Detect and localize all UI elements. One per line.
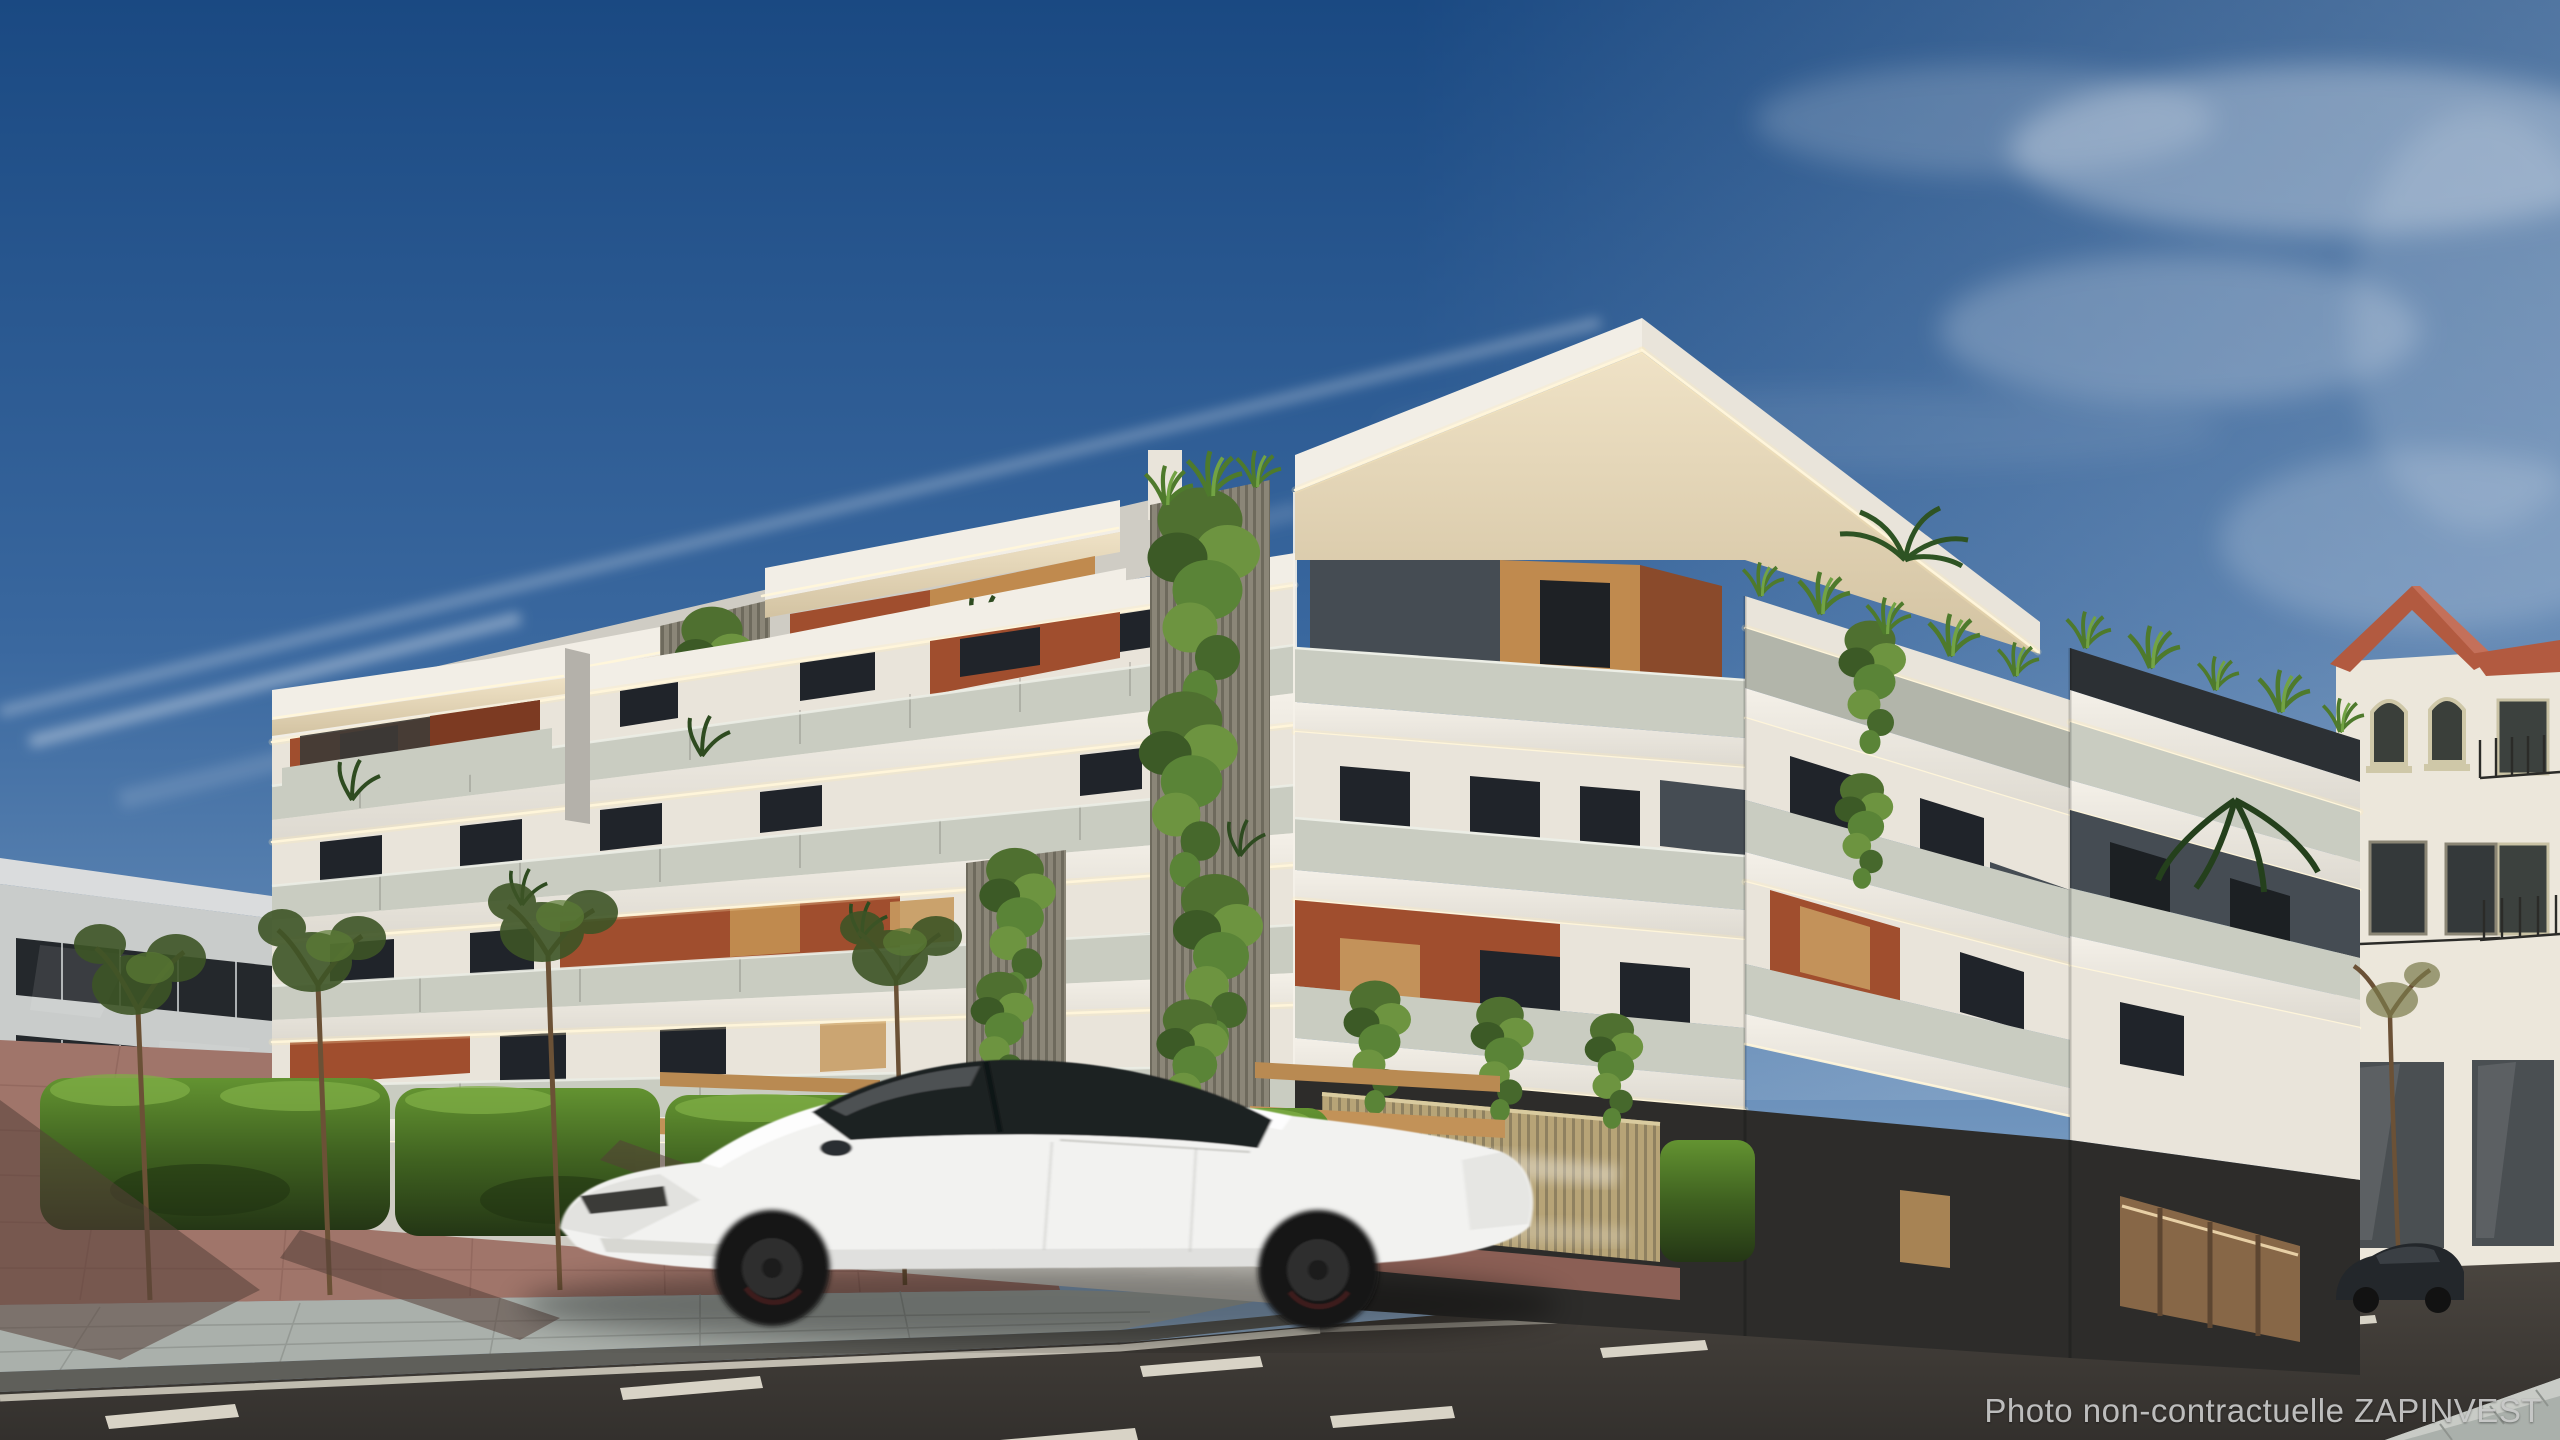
background-building-right xyxy=(2330,586,2560,1330)
vertical-garden-corner xyxy=(1139,451,1281,1142)
scene-render xyxy=(0,0,2560,1440)
watermark-text: Photo non-contractuelle ZAPINVEST xyxy=(1984,1392,2542,1430)
vertical-garden-mid xyxy=(966,848,1066,1097)
render-viewport: Photo non-contractuelle ZAPINVEST xyxy=(0,0,2560,1440)
car-mirror xyxy=(820,1140,852,1156)
